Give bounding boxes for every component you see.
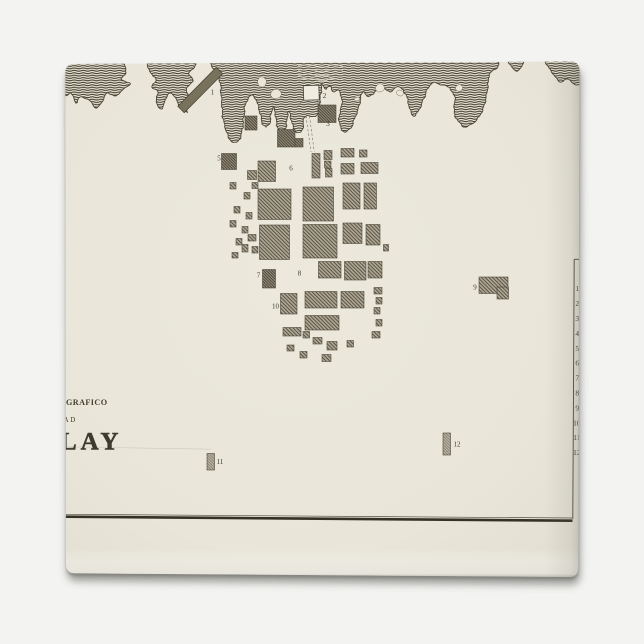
svg-text:12: 12 bbox=[454, 441, 462, 449]
svg-text:5: 5 bbox=[217, 155, 221, 163]
svg-text:9: 9 bbox=[473, 284, 477, 292]
svg-text:1: 1 bbox=[211, 89, 215, 97]
svg-text:2: 2 bbox=[323, 92, 327, 100]
svg-text:6: 6 bbox=[289, 165, 293, 173]
svg-text:11: 11 bbox=[217, 458, 224, 466]
svg-text:3: 3 bbox=[326, 120, 330, 128]
svg-text:GRAFICO: GRAFICO bbox=[66, 398, 107, 407]
svg-text:8: 8 bbox=[298, 270, 302, 278]
svg-text:7: 7 bbox=[257, 272, 261, 280]
svg-text:10: 10 bbox=[272, 303, 280, 311]
svg-text:LAY: LAY bbox=[60, 428, 123, 455]
